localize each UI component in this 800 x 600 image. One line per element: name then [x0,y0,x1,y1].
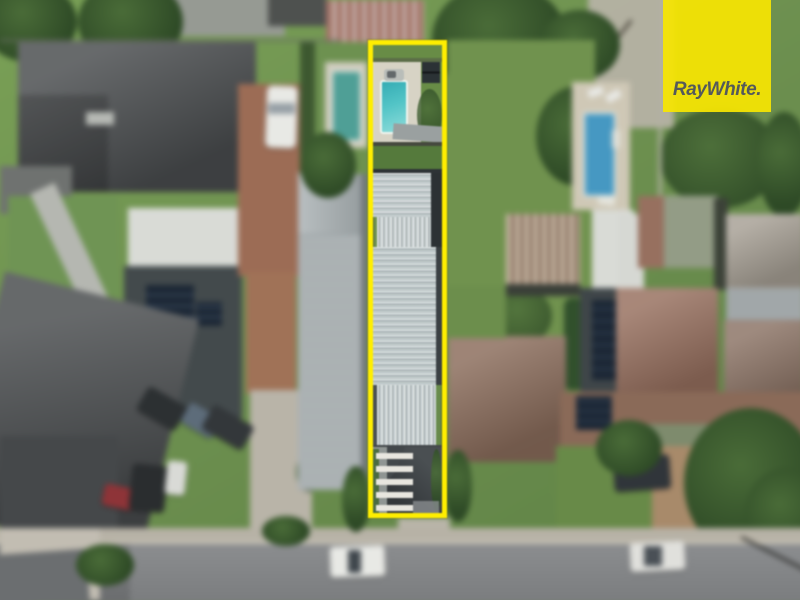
property-boundary-outline [368,40,447,518]
ray-white-logo: RayWhite. [663,0,771,112]
ray-white-logo-text: RayWhite. [673,79,761,112]
aerial-photo: RayWhite. [0,0,800,600]
